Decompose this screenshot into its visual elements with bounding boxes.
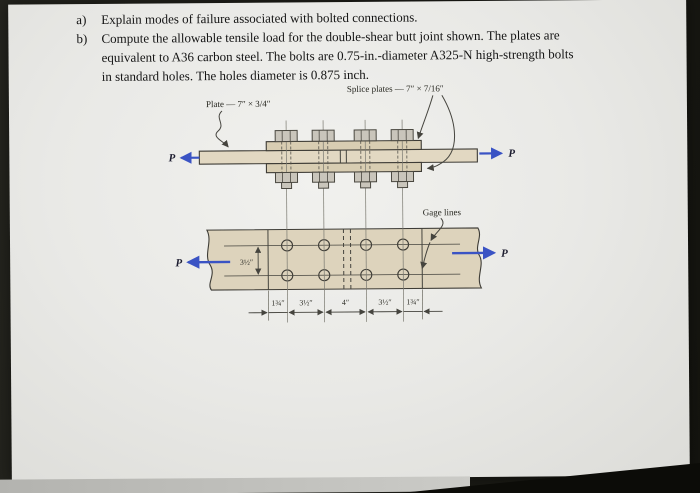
joint-figure: Splice plates — 7″ × 7/16″ Plate — 7″ × … [8, 0, 690, 481]
splice-plates-label: Splice plates — 7″ × 7/16″ [347, 83, 444, 94]
load-label-elev-left: P [169, 152, 176, 164]
dim-value-5: 1¾″ [406, 297, 419, 306]
plate-label: Plate — 7″ × 3/4″ [206, 99, 271, 110]
plate-leader [216, 111, 228, 147]
photo-scene: a)Explain modes of failure associated wi… [0, 0, 700, 493]
elevation-main-plate [199, 149, 477, 164]
gage-lines-label: Gage lines [423, 207, 462, 217]
elevation-view [199, 140, 477, 173]
splice-leader-top [418, 95, 433, 138]
dim-value-3: 4″ [342, 298, 349, 307]
dim-value-1: 1¾″ [271, 299, 284, 308]
load-label-plan-right: P [501, 248, 508, 260]
dim-value-4: 3½″ [378, 298, 391, 307]
bottom-dimension-chain: 1¾″ 3½″ 4″ 3½″ 1¾″ [248, 289, 442, 321]
load-label-elev-right: P [508, 148, 515, 160]
gage-spacing-value: 3½″ [240, 258, 253, 267]
load-label-plan-left: P [175, 257, 182, 269]
dim-value-2: 3½″ [299, 298, 312, 307]
textbook-page: a)Explain modes of failure associated wi… [8, 0, 690, 481]
desk-edge-strip [0, 476, 470, 493]
